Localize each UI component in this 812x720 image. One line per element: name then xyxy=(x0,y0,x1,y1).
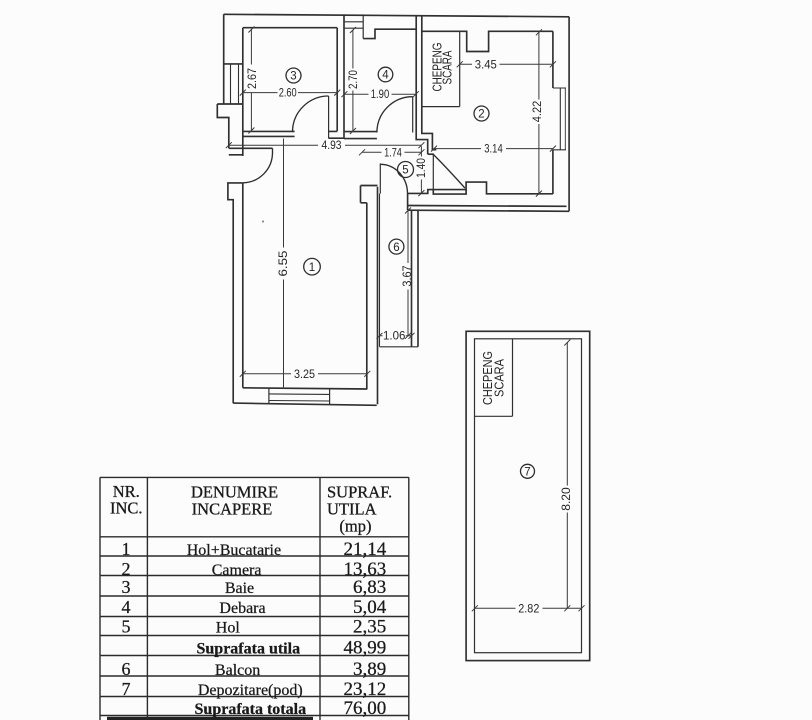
svg-text:7: 7 xyxy=(524,467,530,479)
svg-text:5: 5 xyxy=(122,617,131,637)
svg-text:1.06: 1.06 xyxy=(383,329,406,343)
svg-text:SCARA: SCARA xyxy=(441,50,455,85)
svg-text:2.60: 2.60 xyxy=(279,86,297,100)
svg-text:1.90: 1.90 xyxy=(371,87,390,101)
svg-text:6: 6 xyxy=(393,242,399,254)
svg-text:Suprafata utila: Suprafata utila xyxy=(197,641,301,658)
svg-text:3: 3 xyxy=(290,71,296,83)
svg-text:SCARA: SCARA xyxy=(492,359,507,397)
svg-text:8.20: 8.20 xyxy=(559,487,573,511)
svg-text:2.70: 2.70 xyxy=(346,70,360,89)
svg-text:48,99: 48,99 xyxy=(344,638,387,659)
svg-text:Baie: Baie xyxy=(225,580,254,597)
svg-text:4: 4 xyxy=(122,597,131,617)
svg-text:(mp): (mp) xyxy=(339,516,371,535)
svg-text:3.45: 3.45 xyxy=(475,57,497,71)
svg-text:Depozitare(pod): Depozitare(pod) xyxy=(198,682,303,699)
svg-text:INCAPERE: INCAPERE xyxy=(192,499,273,518)
svg-text:1.40: 1.40 xyxy=(414,158,428,178)
svg-text:2: 2 xyxy=(122,559,131,579)
svg-text:6,83: 6,83 xyxy=(353,577,386,598)
svg-text:Balcon: Balcon xyxy=(215,662,260,679)
svg-text:7: 7 xyxy=(122,679,131,699)
svg-text:3.67: 3.67 xyxy=(400,265,414,286)
svg-text:3.25: 3.25 xyxy=(294,367,315,381)
svg-text:5,04: 5,04 xyxy=(353,597,387,618)
svg-text:3,89: 3,89 xyxy=(353,659,386,680)
svg-text:2,35: 2,35 xyxy=(353,617,386,638)
svg-text:2: 2 xyxy=(478,109,484,121)
svg-text:3.14: 3.14 xyxy=(484,142,503,156)
svg-text:Suprafata totala: Suprafata totala xyxy=(195,701,307,718)
svg-text:Hol: Hol xyxy=(216,620,241,637)
svg-text:23,12: 23,12 xyxy=(344,679,387,700)
svg-text:1: 1 xyxy=(309,262,315,274)
svg-text:76,00: 76,00 xyxy=(344,698,387,719)
svg-text:1.74: 1.74 xyxy=(384,145,402,159)
svg-text:4.22: 4.22 xyxy=(530,101,544,123)
svg-text:2.67: 2.67 xyxy=(245,68,259,89)
svg-text:Debara: Debara xyxy=(219,600,265,617)
svg-text:Camera: Camera xyxy=(212,562,262,579)
svg-text:4: 4 xyxy=(382,70,389,82)
svg-text:21,14: 21,14 xyxy=(344,539,387,560)
svg-text:2.82: 2.82 xyxy=(518,601,539,615)
svg-text:6: 6 xyxy=(122,659,131,679)
svg-text:INC.: INC. xyxy=(110,499,143,518)
svg-text:4.93: 4.93 xyxy=(322,138,342,152)
svg-text:5: 5 xyxy=(402,165,408,177)
svg-text:1: 1 xyxy=(122,539,131,559)
svg-text:3: 3 xyxy=(122,577,131,597)
svg-text:Hol+Bucatarie: Hol+Bucatarie xyxy=(187,542,281,559)
svg-text:6.55: 6.55 xyxy=(276,250,290,276)
